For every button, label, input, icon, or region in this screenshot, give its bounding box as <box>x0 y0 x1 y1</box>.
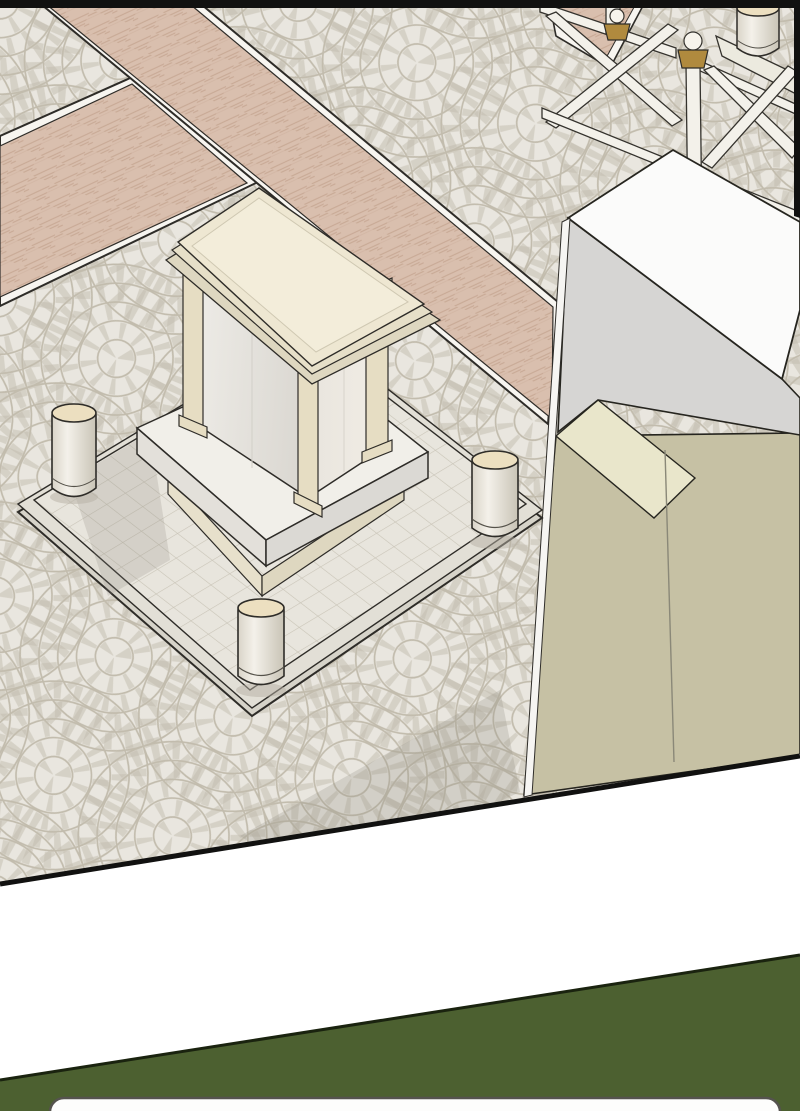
bollard-west <box>50 404 98 504</box>
bollard-northeast <box>737 0 779 56</box>
webtoon-page <box>0 0 800 1111</box>
next-panel-top <box>50 1098 780 1111</box>
panel-border-right <box>794 0 800 218</box>
post-finial-sphere <box>610 9 624 23</box>
green-gap-band <box>0 955 800 1111</box>
brass-post-cap <box>604 24 630 40</box>
panel-border-top <box>0 0 800 8</box>
main-panel-scene <box>0 0 800 890</box>
post-finial-sphere <box>684 32 702 50</box>
brass-post-cap <box>678 50 708 68</box>
building <box>524 150 800 797</box>
